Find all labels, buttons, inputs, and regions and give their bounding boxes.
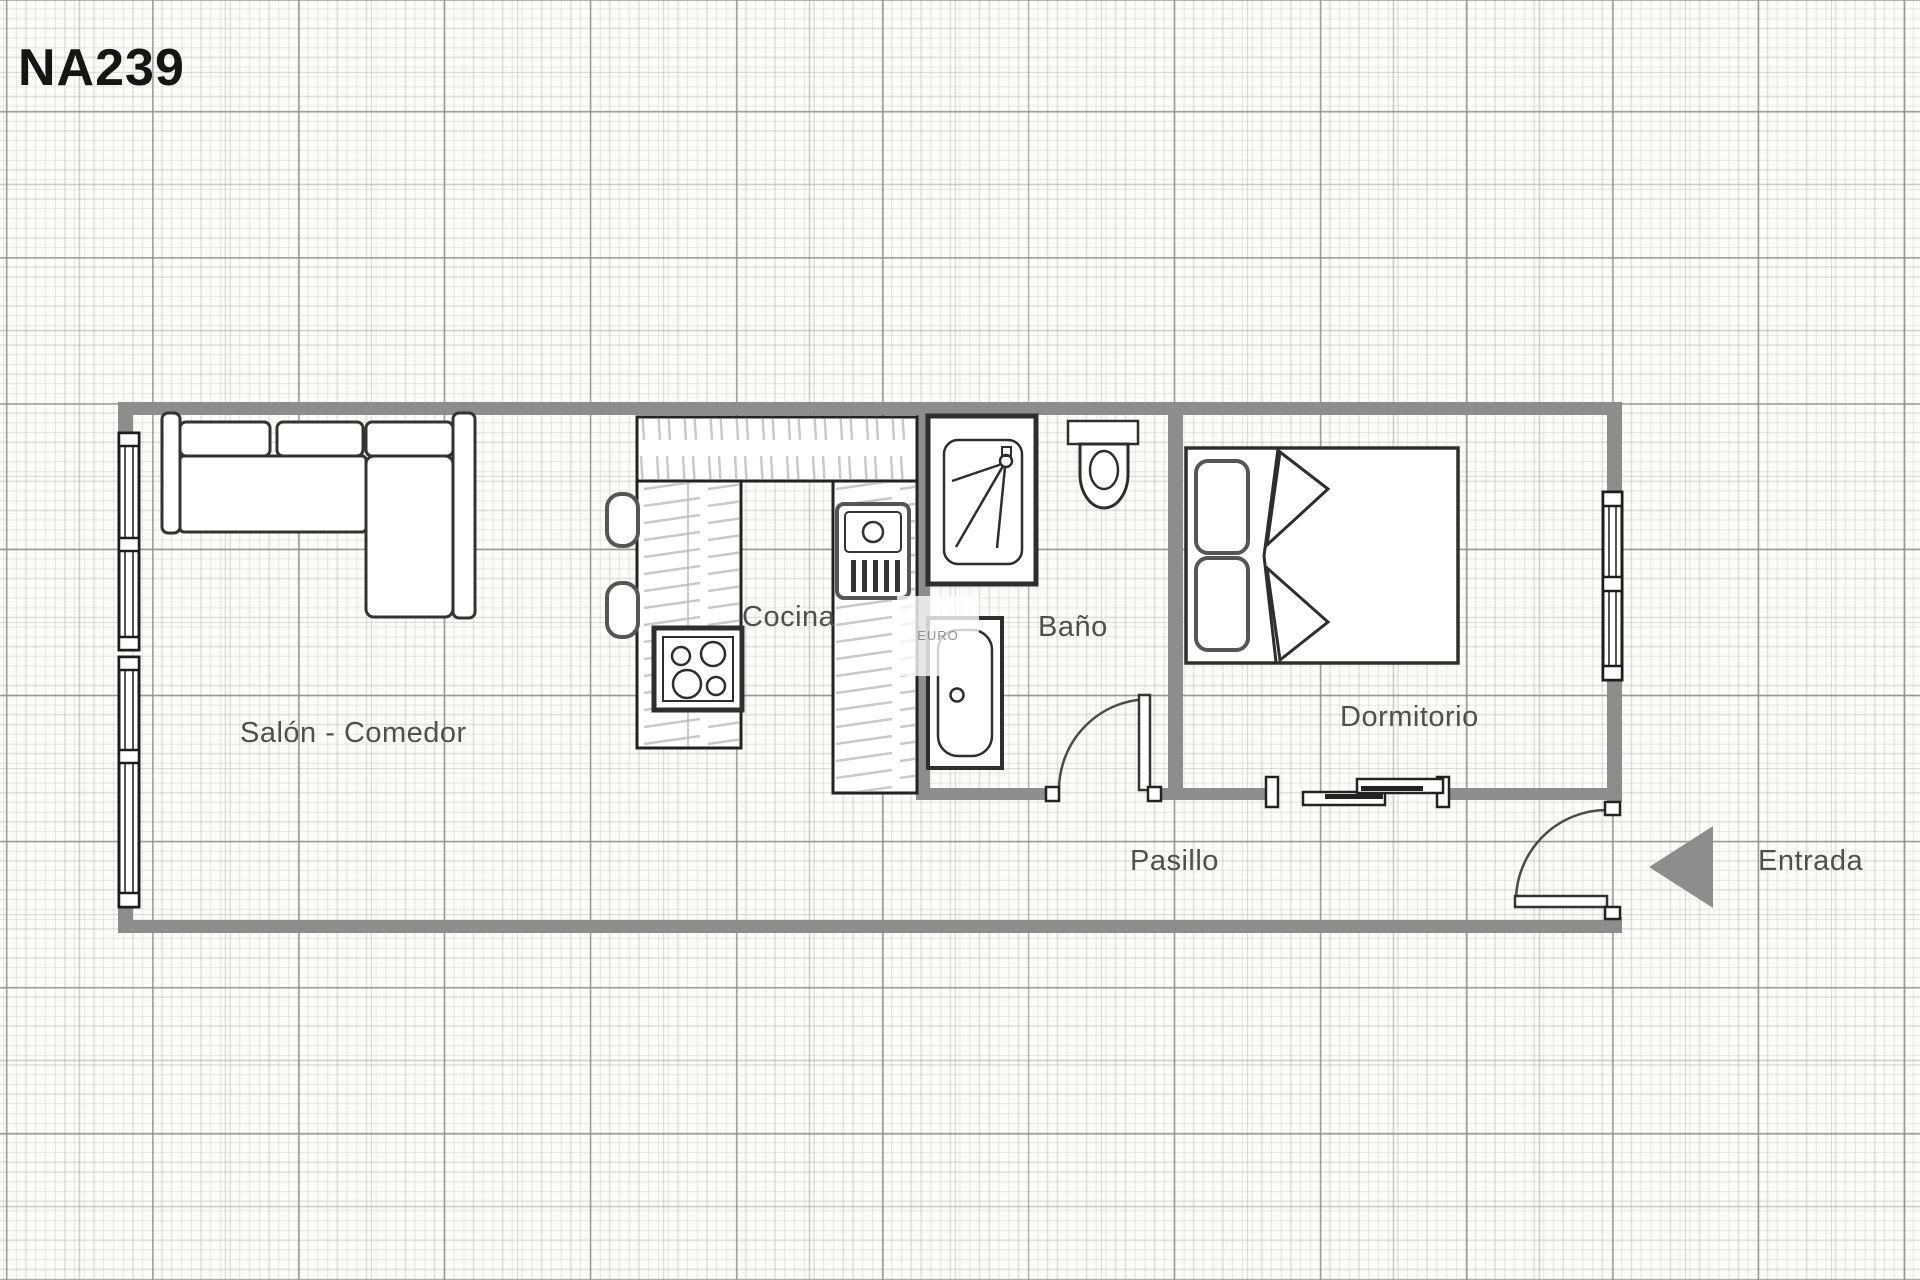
cooktop: [654, 628, 742, 710]
room-label-pasillo: Pasillo: [1130, 845, 1219, 878]
entrance-arrow: [1649, 826, 1713, 908]
wall-bath-dorm: [1168, 415, 1183, 800]
floor-plan-page: NA239 Salón - Comedor Cocina Baño Dormit…: [0, 0, 1920, 1280]
room-label-salon: Salón - Comedor: [240, 717, 467, 750]
stool: [607, 494, 638, 546]
sofa-armrest-right: [453, 413, 475, 618]
toilet: [1068, 421, 1138, 508]
door-leaf: [1515, 896, 1607, 907]
door-leaf: [1139, 695, 1150, 790]
entry-door: [1515, 810, 1607, 907]
window-bedroom-right: [1603, 492, 1622, 680]
sofa-back-cushion: [366, 422, 453, 456]
kitchen-sink: [837, 504, 909, 598]
bedroom-sliding-door: [1266, 777, 1449, 807]
wall-bottom: [118, 920, 1622, 933]
sofa-back-cushion: [180, 422, 270, 456]
sofa: [162, 413, 475, 618]
toilet-tank: [1068, 421, 1138, 444]
double-bed: [1186, 448, 1458, 663]
watermark: EURO: [897, 596, 979, 676]
pillow: [1196, 558, 1248, 650]
wall-dorm-bottom-right: [1446, 788, 1607, 800]
entrance-label: Entrada: [1758, 845, 1863, 878]
room-label-dormitorio: Dormitorio: [1340, 701, 1479, 734]
sliding-door-jamb: [1266, 777, 1278, 807]
window-left-2: [119, 657, 139, 907]
bathroom-door: [1059, 695, 1150, 790]
bar-stools: [607, 494, 638, 637]
stool: [607, 583, 638, 637]
door-swing-arc: [1516, 810, 1607, 901]
sofa-armrest-left: [162, 413, 180, 533]
pillow: [1196, 461, 1248, 553]
room-label-bano: Baño: [1038, 611, 1108, 644]
window-left-1: [119, 433, 139, 650]
shower: [928, 416, 1036, 584]
wall-left-stub-bottom: [118, 905, 133, 933]
sofa-seat: [180, 456, 366, 532]
wall-left-stub-top: [118, 402, 133, 435]
wall-top: [118, 402, 1622, 415]
sofa-back-cushion: [277, 422, 363, 456]
sofa-chaise: [366, 456, 453, 617]
plan-title: NA239: [18, 38, 185, 98]
wall-dorm-bottom-left: [1161, 788, 1270, 800]
toilet-bowl: [1080, 444, 1128, 508]
room-label-cocina: Cocina: [742, 601, 835, 634]
wall-bath-bottom: [916, 788, 1046, 800]
door-swing-arc: [1059, 699, 1150, 790]
